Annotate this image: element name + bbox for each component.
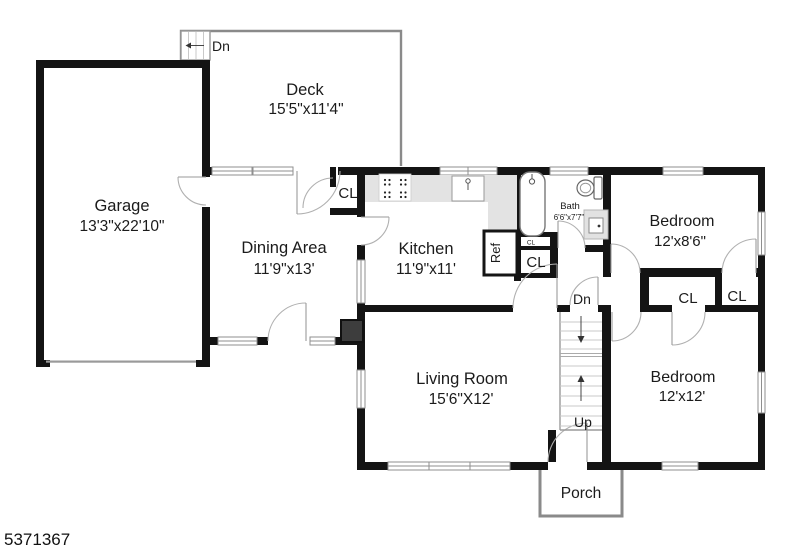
garage-label: Garage (94, 197, 149, 215)
porch-label: Porch (561, 485, 602, 502)
sink-icon (452, 176, 484, 201)
dining-closet-door (303, 178, 333, 208)
deck-dims: 15'5"x11'4" (268, 101, 343, 118)
kitchen-dims: 11'9"x11' (396, 261, 456, 278)
deck-stairs (181, 31, 210, 60)
chimney (341, 320, 363, 342)
living-dims: 15'6"X12' (429, 391, 494, 408)
vanity-icon (584, 210, 608, 239)
bedroom-top-door (611, 244, 640, 273)
dining-kitchen-door (361, 217, 389, 245)
closet-right-door (722, 239, 756, 273)
dining-entry-door (268, 303, 306, 341)
linen-closet-label: CL (527, 240, 536, 247)
bath-window-top (550, 167, 588, 175)
stairs-up-label: Up (574, 414, 592, 430)
dining-window-top-1 (212, 167, 252, 175)
bedroom-bottom-window-bottom (662, 462, 698, 470)
dining-dims: 11'9"x13' (253, 261, 314, 278)
bedroom-closet-right-label: CL (727, 288, 746, 305)
toilet-icon (577, 177, 602, 199)
kitchen-window-top (440, 167, 497, 175)
garage-dining-door (178, 177, 206, 205)
kitchen-pass-through (357, 260, 365, 303)
bathtub-icon (520, 172, 545, 236)
dining-label: Dining Area (241, 239, 327, 257)
bedroom-bottom-window-right (758, 372, 765, 413)
fridge-label: Ref (488, 242, 503, 263)
main-stairs (560, 312, 602, 430)
bedroom-top-dims: 12'x8'6" (654, 233, 706, 250)
living-label: Living Room (416, 370, 508, 388)
floor-plan: Deck 15'5"x11'4" Garage 13'3"x22'10" Din… (0, 0, 800, 548)
bedroom-bottom-door (612, 312, 641, 341)
deck-label: Deck (286, 81, 324, 99)
labels: Deck 15'5"x11'4" Garage 13'3"x22'10" Din… (4, 38, 747, 548)
deck-stairs-down-label: Dn (212, 38, 230, 54)
bedroom-bottom-label: Bedroom (651, 369, 716, 386)
plan-id: 5371367 (4, 530, 70, 548)
dining-closet-label: CL (338, 185, 357, 202)
bedroom-closet-left-label: CL (678, 290, 697, 307)
bedroom-bottom-dims: 12'x12' (659, 388, 706, 405)
closet-left-door (672, 312, 705, 345)
stove-icon (379, 174, 411, 201)
garage-dims: 13'3"x22'10" (79, 218, 164, 235)
living-window-left (357, 370, 365, 408)
bath-door (558, 221, 585, 248)
stairs-down-label: Dn (573, 291, 591, 307)
dining-window-top-2 (253, 167, 293, 175)
bath-label: Bath (560, 201, 580, 212)
dining-window-bottom-1 (218, 337, 257, 345)
dining-window-bottom-2 (310, 337, 335, 345)
garage-door-line (46, 361, 196, 363)
bedroom-top-label: Bedroom (650, 213, 715, 230)
bedroom-top-window-top (663, 167, 703, 175)
living-window-bottom (388, 462, 510, 470)
floor-plan-svg: Deck 15'5"x11'4" Garage 13'3"x22'10" Din… (0, 0, 800, 548)
bath-dims: 6'6"x7'7" (554, 213, 585, 222)
bedroom-top-window-right (758, 212, 765, 255)
hall-closet-label: CL (526, 254, 545, 271)
kitchen-label: Kitchen (398, 240, 453, 258)
